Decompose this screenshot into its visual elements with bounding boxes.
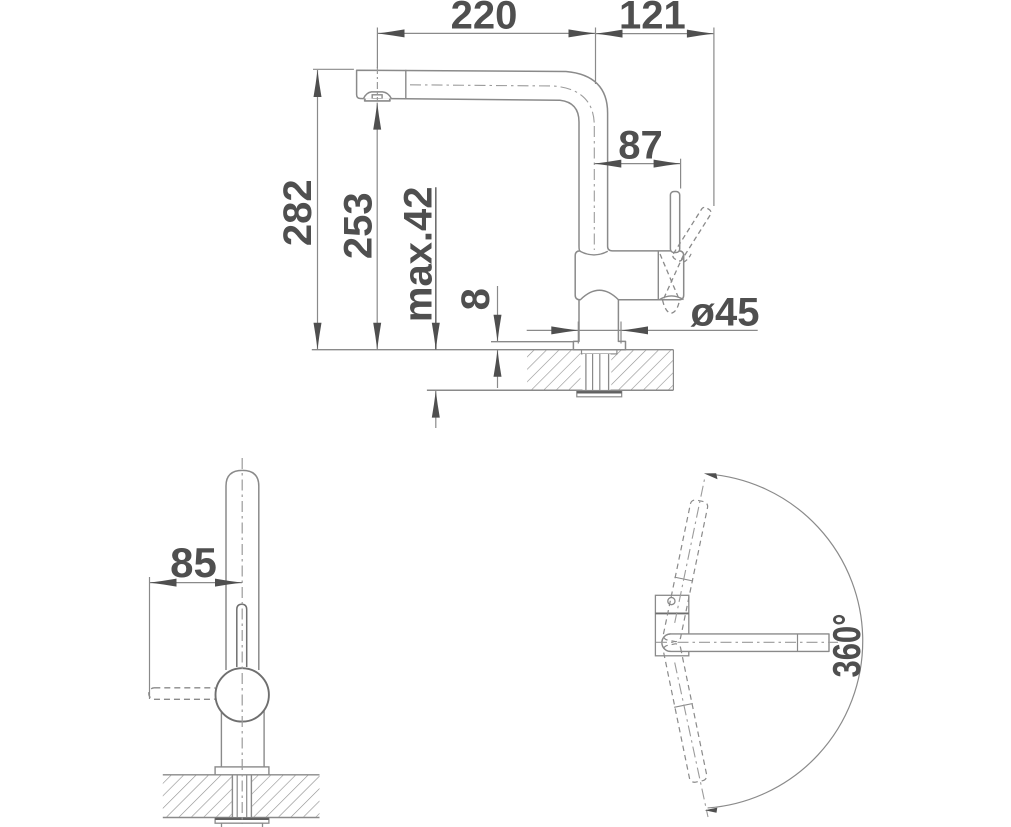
svg-text:ø45: ø45 <box>691 291 760 335</box>
svg-text:282: 282 <box>276 179 320 246</box>
svg-text:85: 85 <box>170 539 217 586</box>
svg-text:253: 253 <box>337 192 381 259</box>
svg-text:8: 8 <box>454 288 498 310</box>
svg-text:max.42: max.42 <box>397 186 441 322</box>
svg-text:121: 121 <box>619 0 686 38</box>
svg-text:360°: 360° <box>826 614 869 678</box>
svg-text:220: 220 <box>451 0 518 38</box>
